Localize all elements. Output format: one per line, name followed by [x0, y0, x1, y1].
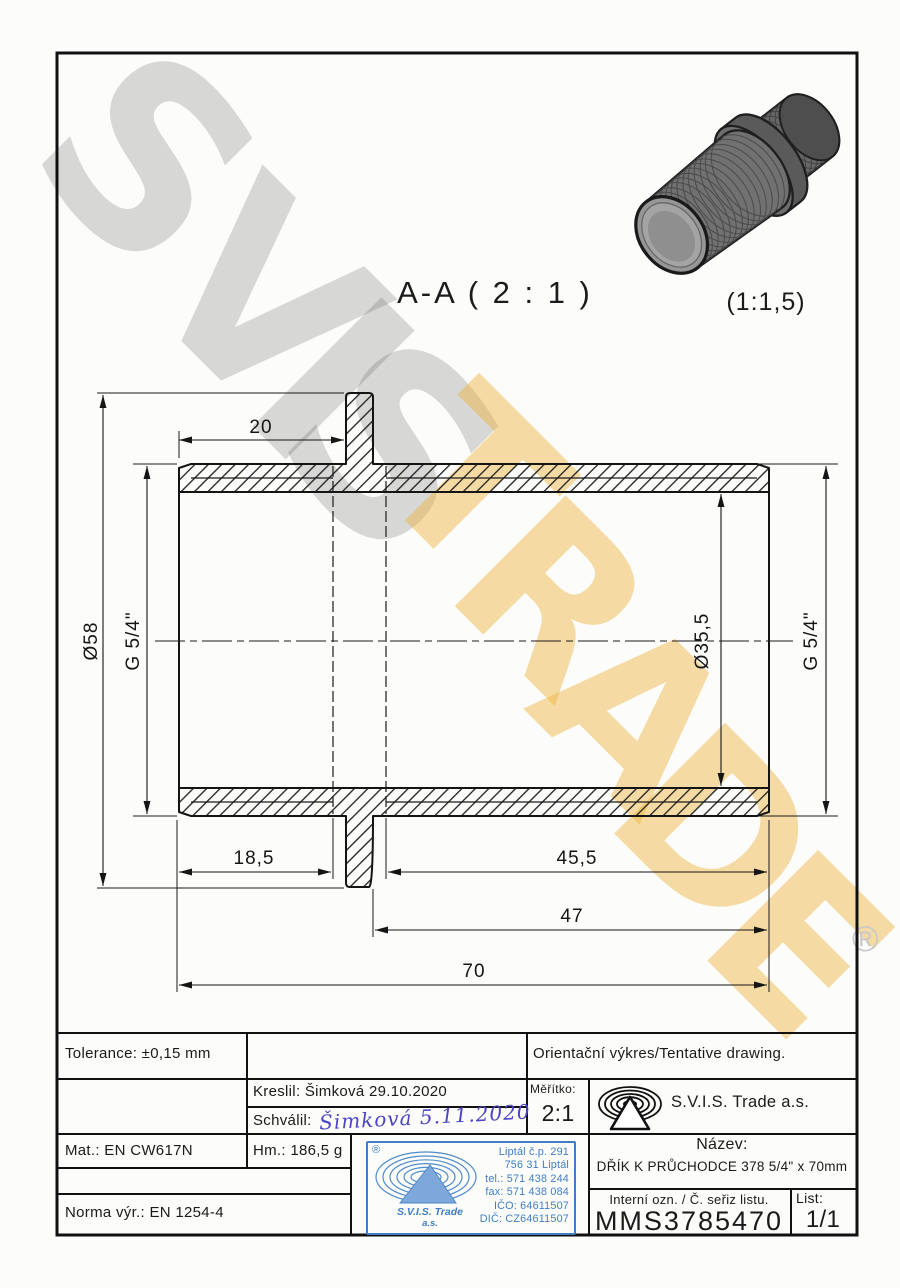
meritko-value: 2:1 [542, 1100, 575, 1127]
dim-len-47: 47 [560, 906, 583, 927]
part-title: DŘÍK K PRŮCHODCE 378 5/4" x 70mm [597, 1159, 848, 1174]
stamp-address-line: IČO: 64611507 [480, 1200, 569, 1213]
list-label: List: [796, 1190, 823, 1206]
dim-thread-right: G 5/4" [801, 611, 822, 670]
dimension-labels: 20 Ø58 G 5/4" Ø35,5 G 5/4" 18,5 45,5 47 … [81, 417, 822, 982]
interni-label: Interní ozn. / Č. seřiz listu. [609, 1192, 768, 1207]
stamp-address-line: tel.: 571 438 244 [480, 1173, 569, 1186]
stamp-address-line: Liptál č.p. 291 [480, 1146, 569, 1159]
table-line [57, 1133, 857, 1135]
table-line [790, 1188, 792, 1235]
part-number: MMS3785470 [595, 1206, 783, 1237]
table-line [246, 1032, 248, 1169]
dim-thread-left: G 5/4" [123, 611, 144, 670]
title-block: Tolerance: ±0,15 mm Orientační výkres/Te… [57, 1032, 857, 1235]
part-3d-render [614, 71, 861, 297]
stamp-logo-icon [374, 1151, 478, 1207]
nazev-label: Název: [696, 1136, 748, 1154]
thread-root-lines [191, 478, 757, 802]
table-line [57, 1167, 350, 1169]
table-line [588, 1078, 590, 1235]
table-line [57, 1078, 857, 1080]
company-logo-icon [597, 1084, 663, 1132]
dim-len-right: 45,5 [557, 848, 598, 869]
tolerance-field: Tolerance: ±0,15 mm [65, 1045, 211, 1062]
stamp-company-line1: S.V.I.S. Trade [380, 1206, 480, 1218]
orientation-note: Orientační výkres/Tentative drawing. [533, 1045, 786, 1062]
top-wall [179, 393, 769, 492]
company-stamp: ® S.V.I.S. Trade a.s. Liptál č.p. 291 75… [366, 1141, 576, 1235]
dim-len-total: 70 [462, 961, 485, 982]
company-name: S.V.I.S. Trade a.s. [671, 1093, 809, 1112]
dim-outer-dia: Ø58 [81, 622, 102, 661]
dim-bore-dia: Ø35,5 [692, 613, 713, 670]
meritko-label: Měřítko: [530, 1082, 576, 1096]
list-value: 1/1 [806, 1206, 840, 1234]
thread-limit-lines [333, 466, 386, 814]
stamp-address-line: DIČ: CZ64611507 [480, 1213, 569, 1226]
norm-field: Norma výr.: EN 1254-4 [65, 1204, 224, 1221]
weight-field: Hm.: 186,5 g [253, 1142, 342, 1159]
stamp-address: Liptál č.p. 291 756 31 Liptál tel.: 571 … [480, 1146, 569, 1226]
stamp-address-line: fax: 571 438 084 [480, 1186, 569, 1199]
table-line [57, 1193, 350, 1195]
section-label: A-A ( 2 : 1 ) [397, 275, 593, 310]
table-line [350, 1133, 352, 1235]
dim-top-width: 20 [249, 417, 272, 438]
stamp-address-line: 756 31 Liptál [480, 1159, 569, 1172]
approval-signature: Šimková 5.11.2020 [319, 1099, 532, 1134]
kreslil-field: Kreslil: Šimková 29.10.2020 [253, 1083, 447, 1100]
dim-len-left: 18,5 [234, 848, 275, 869]
table-line [57, 1032, 857, 1034]
stamp-company-line2: a.s. [380, 1218, 480, 1229]
drawing-sheet: S V I S T R A D E ® [0, 0, 900, 1288]
material-field: Mat.: EN CW617N [65, 1142, 193, 1159]
render-scale-label: (1:1,5) [726, 288, 805, 316]
schvalil-label: Schválil: [253, 1112, 312, 1129]
